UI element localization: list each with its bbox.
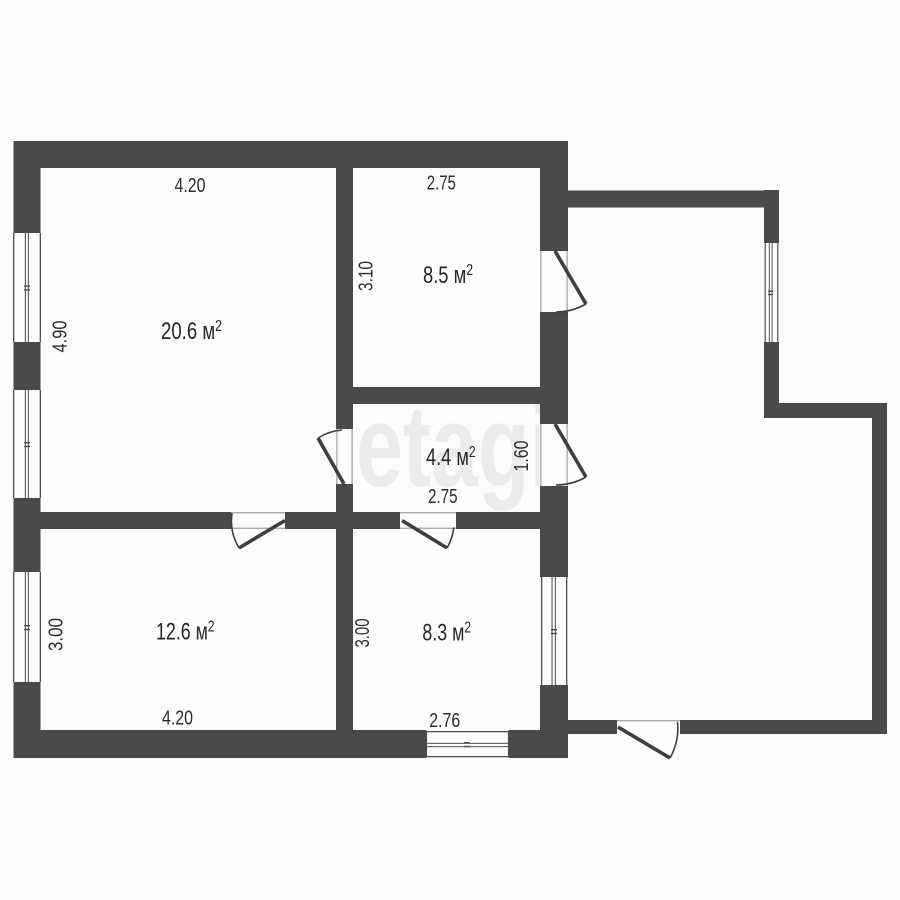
svg-text:3.10: 3.10 — [355, 261, 377, 291]
svg-text:2.76: 2.76 — [429, 710, 460, 732]
svg-text:1.60: 1.60 — [511, 441, 533, 472]
svg-text:2.75: 2.75 — [427, 173, 456, 195]
svg-text:20.6 м2: 20.6 м2 — [161, 318, 222, 345]
svg-text:4.4 м2: 4.4 м2 — [426, 444, 476, 471]
svg-text:3.00: 3.00 — [46, 618, 68, 651]
svg-text:2.75: 2.75 — [428, 486, 458, 508]
svg-text:8.3 м2: 8.3 м2 — [422, 620, 471, 647]
svg-text:8.5 м2: 8.5 м2 — [423, 262, 473, 289]
svg-text:4.20: 4.20 — [175, 175, 206, 197]
svg-text:12.6 м2: 12.6 м2 — [156, 619, 215, 646]
svg-text:3.00: 3.00 — [352, 619, 374, 648]
svg-text:4.90: 4.90 — [50, 321, 72, 353]
svg-text:4.20: 4.20 — [162, 708, 193, 730]
